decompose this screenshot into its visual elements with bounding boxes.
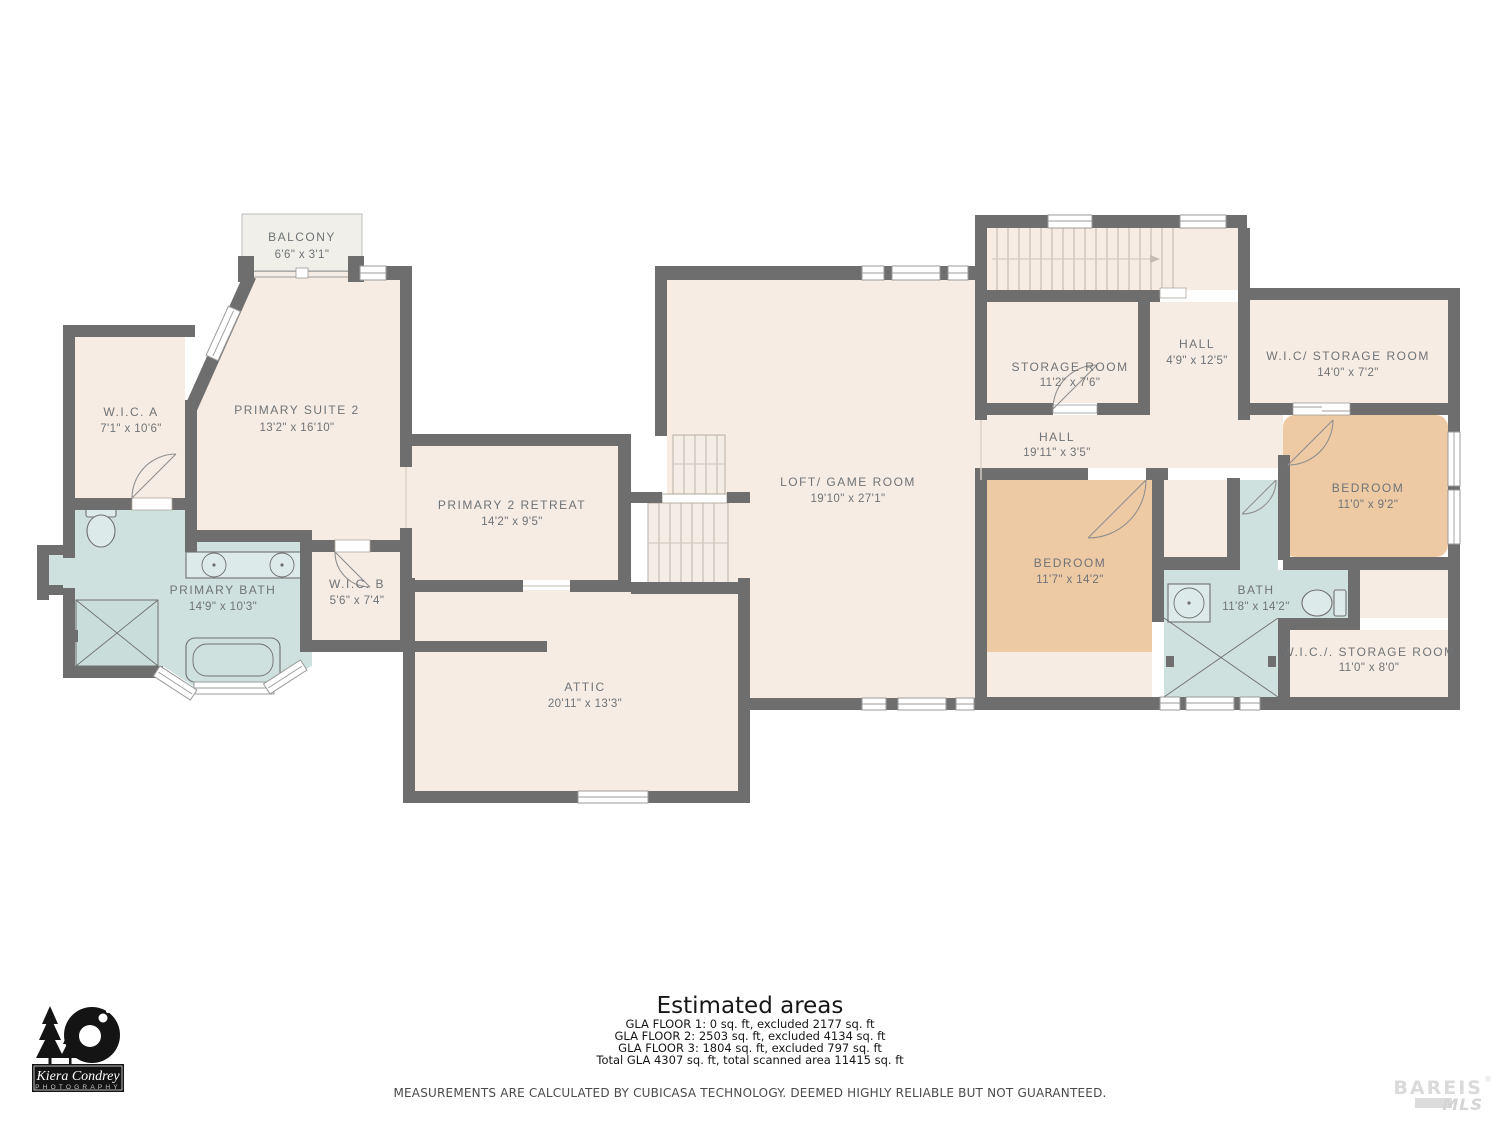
svg-text:LOFT/ GAME ROOM: LOFT/ GAME ROOM <box>780 475 916 489</box>
measurement-disclaimer: MEASUREMENTS ARE CALCULATED BY CUBICASA … <box>393 1086 1106 1100</box>
window-icon <box>1048 215 1092 228</box>
floor-plan-page: BALCONY 6'6" x 3'1" W.I.C. A 7'1" x 10'6… <box>0 0 1500 1125</box>
svg-text:HALL: HALL <box>1039 430 1075 444</box>
svg-text:6'6" x 3'1": 6'6" x 3'1" <box>275 249 330 261</box>
svg-text:BEDROOM: BEDROOM <box>1034 556 1107 570</box>
bathtub-fixture <box>186 638 280 682</box>
svg-text:11'7" x 14'2": 11'7" x 14'2" <box>1036 574 1103 586</box>
svg-text:14'2" x 9'5": 14'2" x 9'5" <box>481 516 542 528</box>
svg-text:14'9" x 10'3": 14'9" x 10'3" <box>189 601 257 613</box>
room-fill-bath2-entry <box>1240 480 1278 570</box>
room-fill-nook <box>1164 480 1227 557</box>
window-icon <box>1240 697 1260 710</box>
toilet-bowl-fixture <box>87 515 115 547</box>
staircase-middle <box>648 435 728 583</box>
svg-text:BATH: BATH <box>1237 583 1274 597</box>
photographer-name: Kiera Condrey <box>35 1069 120 1084</box>
svg-text:W.I.C. B: W.I.C. B <box>329 577 385 591</box>
svg-text:BALCONY: BALCONY <box>268 230 336 244</box>
floor-plan-image: BALCONY 6'6" x 3'1" W.I.C. A 7'1" x 10'6… <box>0 0 1500 1125</box>
svg-text:5'6" x 7'4": 5'6" x 7'4" <box>330 595 385 607</box>
mls-suffix: MLS <box>1442 1095 1483 1114</box>
photographer-logo: Kiera Condrey PHOTOGRAPHY <box>32 1006 124 1092</box>
svg-text:4'9" x 12'5": 4'9" x 12'5" <box>1166 355 1227 367</box>
estimated-areas-title: Estimated areas <box>657 993 844 1019</box>
svg-text:11'2" x 7'6": 11'2" x 7'6" <box>1040 377 1101 389</box>
svg-text:19'11" x 3'5": 19'11" x 3'5" <box>1023 447 1090 459</box>
svg-text:W.I.C. A: W.I.C. A <box>103 405 158 419</box>
estimated-areas: Estimated areas GLA FLOOR 1: 0 sq. ft, e… <box>393 993 1106 1100</box>
svg-text:11'0" x 8'0": 11'0" x 8'0" <box>1339 662 1400 674</box>
svg-text:HALL: HALL <box>1179 337 1215 351</box>
toilet-bowl-fixture <box>1302 590 1332 616</box>
room-fill-wic-storage-bottom-a <box>1360 570 1448 618</box>
svg-text:11'0" x 9'2": 11'0" x 9'2" <box>1338 499 1399 511</box>
shower-valve-icon <box>1268 656 1276 667</box>
svg-text:19'10" x 27'1": 19'10" x 27'1" <box>810 493 885 505</box>
svg-text:W.I.C/ STORAGE ROOM: W.I.C/ STORAGE ROOM <box>1266 349 1430 363</box>
pine-tree-icon <box>36 1006 64 1058</box>
svg-text:20'11" x 13'3": 20'11" x 13'3" <box>548 698 622 710</box>
window-icon <box>1160 697 1180 710</box>
svg-text:13'2" x 16'10": 13'2" x 16'10" <box>259 422 334 434</box>
toilet-tank-fixture <box>1334 590 1346 616</box>
svg-text:PRIMARY 2 RETREAT: PRIMARY 2 RETREAT <box>438 498 586 512</box>
room-fill-retreat <box>412 446 618 580</box>
window-icon <box>1186 697 1234 710</box>
svg-text:7'1" x 10'6": 7'1" x 10'6" <box>100 423 161 435</box>
svg-text:PRIMARY SUITE 2: PRIMARY SUITE 2 <box>234 403 359 417</box>
svg-text:ATTIC: ATTIC <box>564 680 605 694</box>
registered-icon: ® <box>1484 1075 1492 1084</box>
window-icon <box>1180 215 1226 228</box>
gla-total: Total GLA 4307 sq. ft, total scanned are… <box>595 1053 904 1067</box>
svg-text:14'0" x 7'2": 14'0" x 7'2" <box>1317 367 1378 379</box>
mls-logo: BAREIS ® MLS <box>1393 1075 1492 1114</box>
svg-text:STORAGE ROOM: STORAGE ROOM <box>1011 360 1128 374</box>
room-fill-bath-nook <box>49 555 75 590</box>
room-fill-landing <box>1179 228 1238 290</box>
shower-valve-icon <box>1166 656 1174 667</box>
room-fill-bedroom-1-strip <box>987 652 1152 697</box>
svg-text:11'8" x 14'2": 11'8" x 14'2" <box>1222 601 1289 613</box>
svg-text:PRIMARY BATH: PRIMARY BATH <box>170 583 277 597</box>
room-fill-hall-horizontal <box>987 415 1283 468</box>
photographer-subtitle: PHOTOGRAPHY <box>35 1084 121 1091</box>
svg-text:W.I.C./. STORAGE ROOM: W.I.C./. STORAGE ROOM <box>1282 645 1455 659</box>
svg-text:BEDROOM: BEDROOM <box>1332 481 1405 495</box>
